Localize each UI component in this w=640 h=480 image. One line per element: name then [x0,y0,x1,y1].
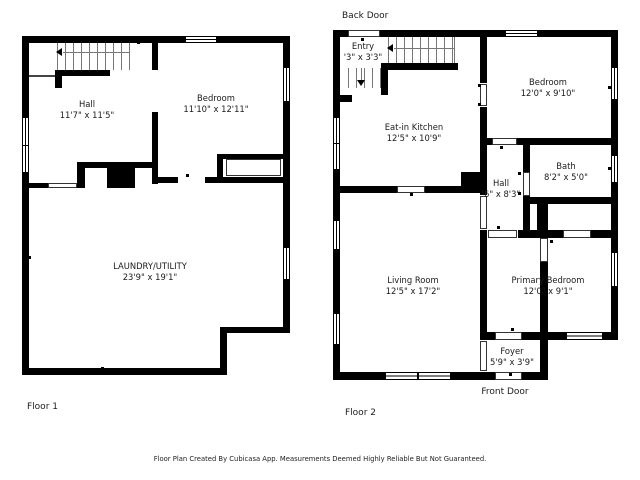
wall [152,43,158,70]
room-dims: 12'5" x 10'9" [385,133,444,144]
wall [55,70,62,88]
wall [333,95,352,102]
stair-rail-line [63,52,130,53]
window [611,252,618,287]
wall [381,63,458,70]
wall [29,183,48,188]
window [333,117,340,144]
room-label-foyer: Foyer 5'9" x 3'9" [490,346,534,367]
door-tick [101,367,104,370]
wall [22,36,290,43]
stair-down-arrow [357,80,365,86]
room-name: Hall [60,99,115,110]
wall [517,138,618,145]
back-door-opening [348,30,380,37]
wall [77,162,85,188]
wall [523,145,530,173]
room-label-primary-bedroom: Primary Bedroom 12'0" x 9'1" [512,275,585,296]
wall [220,327,227,375]
door-tick [511,328,514,331]
window [385,372,418,380]
staircase [388,37,455,63]
door-opening [480,341,487,371]
window [22,145,29,173]
room-label-hall-f1: Hall 11'7" x 11'5" [60,99,115,120]
room-name: Hall [482,178,521,189]
wall [523,197,618,204]
floor1-label: Floor 1 [27,402,58,412]
closet-sliding-doors [563,230,591,238]
window [333,313,340,345]
chimney [461,172,480,193]
room-dims: 23'9" x 19'1" [113,272,187,283]
door-tick [608,167,611,170]
door-tick [28,256,31,259]
door-tick [478,103,481,106]
door-tick [518,172,521,175]
door-opening [523,172,530,196]
door-tick [497,226,500,229]
closet-doors [226,159,281,176]
wall [425,186,463,193]
stair-direction-arrow [56,48,62,56]
door-opening [495,332,522,340]
back-door-label: Back Door [342,11,388,21]
door-opening [480,84,487,106]
window [418,372,451,380]
room-label-bedroom-f1: Bedroom 11'10" x 12'11" [183,93,248,114]
room-dims: '3" x 3'3" [344,52,383,63]
stair-rail-line [394,48,455,49]
window [22,117,29,146]
wall [540,332,548,380]
front-door-label: Front Door [481,387,528,397]
door-tick [410,193,413,196]
wall [152,112,158,184]
room-name: Foyer [490,346,534,357]
wall [55,70,110,76]
window [185,36,217,43]
room-label-hall-f2: Hall '6" x 8'3" [482,178,521,199]
chimney [107,165,135,188]
door-tick [550,240,553,243]
door-tick [478,84,481,87]
room-name: Living Room [386,275,441,286]
door-opening [488,230,517,238]
room-dims: 11'7" x 11'5" [60,110,115,121]
floor-plan-canvas: Hall 11'7" x 11'5" Bedroom 11'10" x 12'1… [0,0,640,480]
room-dims: 5'9" x 3'9" [490,357,534,368]
room-label-entry: Entry '3" x 3'3" [344,41,383,62]
wall [480,37,487,83]
floor2-label: Floor 2 [345,408,376,418]
door-tick [186,174,189,177]
wall [220,327,290,333]
room-dims: 11'10" x 12'11" [183,104,248,115]
staircase [57,43,130,70]
room-dims: '6" x 8'3" [482,189,521,200]
wall [537,204,548,230]
room-name: Eat-in Kitchen [385,122,444,133]
room-name: Entry [344,41,383,52]
room-label-bath: Bath 8'2" x 5'0" [544,161,588,182]
room-name: Bedroom [521,77,576,88]
door-opening [397,186,425,193]
door-tick [500,146,503,149]
wall [152,177,178,183]
wall [340,186,397,193]
window [566,332,603,340]
room-label-living-room: Living Room 12'5" x 17'2" [386,275,441,296]
wall [518,230,565,238]
wall [480,230,487,332]
wall [540,262,548,332]
room-dims: 12'0" x 9'10" [521,88,576,99]
window [611,155,618,183]
door-tick [608,86,611,89]
room-name: Bath [544,161,588,172]
door-tick [509,373,512,376]
window [611,67,618,100]
window [333,143,340,170]
room-name: LAUNDRY/UTILITY [113,261,187,272]
stair-direction-arrow [387,44,393,52]
door-opening [492,138,517,145]
room-dims: 12'0" x 9'1" [512,286,585,297]
room-label-bedroom-f2: Bedroom 12'0" x 9'10" [521,77,576,98]
room-dims: 12'5" x 17'2" [386,286,441,297]
wall [22,368,227,375]
window [505,30,538,37]
wall [590,230,618,238]
room-dims: 8'2" x 5'0" [544,172,588,183]
wall [22,36,29,375]
room-label-eat-in-kitchen: Eat-in Kitchen 12'5" x 10'9" [385,122,444,143]
door-tick [137,41,140,44]
room-name: Primary Bedroom [512,275,585,286]
wall [480,332,495,340]
window [283,67,290,102]
window [283,247,290,280]
room-label-laundry-utility: LAUNDRY/UTILITY 23'9" x 19'1" [113,261,187,282]
window [333,220,340,250]
door-opening [48,183,77,188]
door-opening [480,196,487,229]
stair-landing-line [29,75,55,77]
door-opening [540,238,548,262]
room-name: Bedroom [183,93,248,104]
footer-disclaimer: Floor Plan Created By Cubicasa App. Meas… [154,455,487,463]
